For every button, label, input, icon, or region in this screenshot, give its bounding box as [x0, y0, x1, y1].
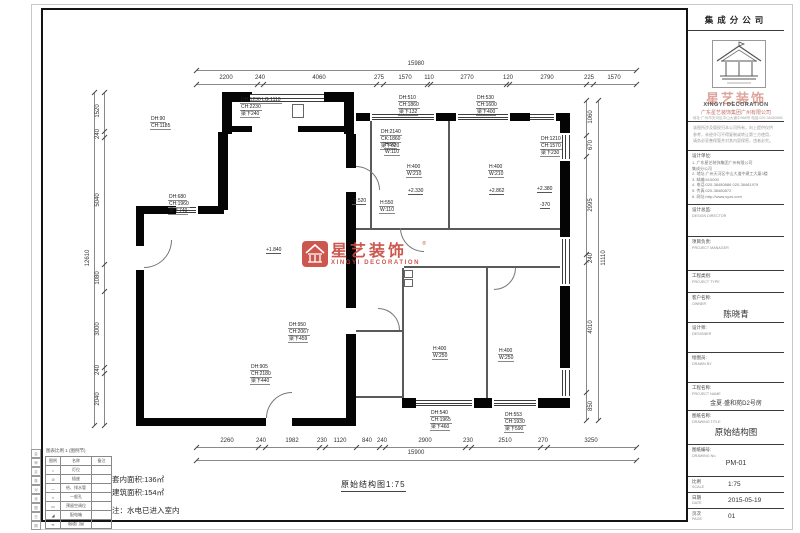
- drawing-caption: 原始结构图1:75: [341, 479, 406, 492]
- annotation-label: DH:1210CH:1570梁下230: [540, 136, 562, 157]
- dimension-label: 110: [424, 75, 434, 81]
- dimension-tick: [92, 423, 98, 429]
- dimension-label: 230: [317, 438, 327, 444]
- fixture: [292, 104, 304, 118]
- dimension-label: 15900: [408, 450, 425, 456]
- section-value: 原始结构图: [688, 426, 784, 438]
- legend-cell: 烟道门窗: [61, 520, 92, 529]
- dimension-tick: [634, 445, 640, 451]
- partition-wall: [356, 228, 560, 230]
- titleblock-divider: [688, 121, 784, 122]
- dimension-tick: [634, 68, 640, 74]
- section-value: PM-01: [688, 460, 784, 467]
- legend-cell: [92, 475, 112, 484]
- design-unit-info: 1. 广东星艺装饰集团广州有限公司 集成分公司2. 地址:广州天河区中山大道中建…: [692, 160, 768, 199]
- window: [416, 400, 472, 406]
- section-label-cn: 图纸名称:: [692, 413, 711, 419]
- wall: [346, 134, 356, 168]
- wall: [136, 352, 144, 426]
- dimension-label: 1080: [95, 271, 101, 284]
- dimension-label: 850: [588, 401, 594, 411]
- dimension-label: 230: [463, 438, 473, 444]
- legend-header-row: 图例名称备注: [46, 457, 112, 466]
- partition-wall: [356, 396, 404, 398]
- pavilion-sketch-icon: [713, 41, 765, 87]
- legend-title: 图表比例 1 (图例节): [46, 448, 86, 454]
- titleblock-divider: [688, 322, 784, 323]
- titleblock-divider: [688, 444, 784, 445]
- footer-label-en: DATE: [692, 500, 702, 505]
- annotation-label: H:400W:210: [406, 164, 422, 178]
- dimension-label: 840: [362, 438, 372, 444]
- dimension-label: 240: [256, 438, 266, 444]
- wall: [136, 418, 266, 426]
- watermark-brand-en: XINGYI DECORATION: [331, 260, 420, 266]
- wall: [474, 398, 492, 408]
- level-label: +2.380: [537, 186, 552, 193]
- dimension-line: [104, 92, 105, 425]
- area-notes: 套内面积:136㎡ 建筑面积:154㎡ 注：水电已进入室内: [112, 473, 180, 517]
- wall: [346, 334, 356, 426]
- partition-wall: [486, 268, 488, 398]
- legend-cell: [92, 511, 112, 520]
- dimension-label: 5040: [95, 193, 101, 206]
- dimension-label: 275: [374, 75, 384, 81]
- dimension-label: 11110: [601, 250, 607, 265]
- dimension-tick: [102, 423, 108, 429]
- dimension-tick: [634, 458, 640, 464]
- wall: [556, 113, 570, 121]
- titleblock-divider: [688, 150, 784, 151]
- revision-strip-cell: 会: [31, 449, 41, 458]
- annotation-label: DH:510CH:1860梁下132: [398, 95, 420, 116]
- door-arc: [494, 268, 516, 290]
- fixture: [404, 270, 413, 278]
- dimension-label: 1060: [588, 110, 594, 123]
- dimension-label: 120: [503, 75, 513, 81]
- dimension-line: [196, 70, 636, 71]
- window-mid: [458, 117, 508, 118]
- note-build-area: 建筑面积:154㎡: [112, 486, 180, 499]
- partition-wall: [404, 266, 560, 268]
- window-mid: [530, 117, 554, 118]
- section-label-cn: 客户名称:: [692, 295, 711, 301]
- legend-cell: 一般孔: [61, 493, 92, 502]
- revision-strip-cell: 对: [31, 485, 41, 494]
- dimension-label: 1570: [607, 75, 620, 81]
- annotation-label: H:400W:250: [432, 346, 448, 360]
- dimension-label: 2790: [540, 75, 553, 81]
- dimension-label: 225: [584, 75, 594, 81]
- legend-cell: 预留空调位: [61, 502, 92, 511]
- legend-row: ◢配电箱: [46, 511, 112, 520]
- drawing-sheet: 1598022002404060275157011027701202790225…: [0, 0, 800, 533]
- wall: [560, 161, 570, 237]
- dimension-label: 240: [95, 129, 101, 139]
- dimension-label: 2510: [498, 438, 511, 444]
- legend-cell: ▪▪: [46, 520, 61, 529]
- annotation-label: DH:553CH:1930梁下590: [504, 412, 526, 433]
- legend-row: ⊙插座: [46, 475, 112, 484]
- dimension-label: 270: [538, 438, 548, 444]
- section-label-cn: 绘图员:: [692, 355, 707, 361]
- wall: [538, 398, 550, 408]
- level-label: +2.330: [408, 188, 423, 195]
- legend-cell: [92, 493, 112, 502]
- legend-row: ▭预留空调位: [46, 502, 112, 511]
- section-label-cn: 设计总监:: [692, 207, 711, 213]
- dimension-label: 670: [588, 140, 594, 150]
- door-arc: [266, 392, 292, 418]
- partition-wall: [356, 330, 404, 332]
- dimension-label: 2200: [219, 75, 232, 81]
- footer-value: 01: [728, 513, 735, 520]
- section-label-cn: 工程名称:: [692, 385, 711, 391]
- section-label-en: PROJECT MANAGER: [692, 245, 729, 250]
- dimension-label: 12610: [85, 250, 91, 267]
- window-mid: [416, 403, 472, 404]
- legend-cell: ⊙: [46, 475, 61, 484]
- wall: [218, 132, 228, 210]
- brand-watermark: 星艺装饰 XINGYI DECORATION ®: [302, 241, 420, 267]
- dimension-label: 3250: [584, 438, 597, 444]
- annotation-label: DH:540CH:1965梁下460: [430, 410, 452, 431]
- legend-cell: [92, 466, 112, 475]
- window: [530, 114, 554, 120]
- window-mid: [372, 117, 434, 118]
- window-mid: [494, 403, 536, 404]
- legend-row: —给、排水管: [46, 484, 112, 493]
- fixture: [404, 279, 413, 287]
- level-label: +1.840: [266, 247, 281, 254]
- legend-cell: 名称: [61, 457, 92, 466]
- section-label-en: DRAWING No.: [692, 453, 716, 458]
- footer-label-en: PAGE: [692, 516, 702, 521]
- section-label-en: DESIGN DIRECTOR: [692, 213, 726, 218]
- dimension-label: 1570: [398, 75, 411, 81]
- titleblock-divider: [688, 30, 784, 31]
- dimension-label: 240: [588, 253, 594, 263]
- window: [562, 239, 570, 284]
- door-arc: [356, 166, 380, 190]
- annotation-label: DH:530CH:1600梁下400: [476, 95, 498, 116]
- wall: [560, 121, 570, 133]
- annotation-label: DH:90CH:1185: [150, 116, 171, 130]
- legend-cell: [92, 502, 112, 511]
- dimension-label: 2040: [95, 392, 101, 405]
- wall: [198, 206, 224, 214]
- titleblock-divider: [688, 382, 784, 383]
- window-mid: [565, 370, 566, 396]
- window-mid: [565, 135, 566, 159]
- revision-strip-cell: 核: [31, 476, 41, 485]
- legend-table: 图例名称备注•灯位⊙插座—给、排水管≈一般孔▭预留空调位◢配电箱▪▪烟道门窗: [45, 456, 112, 529]
- dimension-label: 3000: [95, 322, 101, 335]
- note-inner-area: 套内面积:136㎡: [112, 473, 180, 486]
- section-label-en: DESIGNER: [692, 331, 711, 336]
- revision-strip-cell: 定: [31, 467, 41, 476]
- window: [494, 400, 536, 406]
- legend-cell: 插座: [61, 475, 92, 484]
- window: [562, 370, 570, 396]
- dimension-label: 240: [255, 75, 265, 81]
- legend-cell: [92, 520, 112, 529]
- section-label-cn: 工程类别:: [692, 273, 711, 279]
- wall: [292, 418, 354, 426]
- section-label-cn: 项目负责:: [692, 239, 711, 245]
- dimension-line: [196, 460, 636, 461]
- dimension-label: 240: [95, 365, 101, 375]
- wall: [230, 126, 252, 132]
- revision-strip-cell: 审: [31, 458, 41, 467]
- wall: [136, 206, 144, 246]
- level-label: -0.520: [352, 198, 366, 205]
- footer-label-en: SCALE: [692, 484, 704, 489]
- titleblock-divider: [688, 292, 784, 293]
- section-label-en: OWNER: [692, 301, 706, 306]
- dimension-label: 15980: [408, 61, 425, 67]
- annotation-label: DH:1230 LG:1110CH:2230梁下240: [240, 97, 282, 118]
- legend-cell: 灯位: [61, 466, 92, 475]
- section-value: 陈晓青: [688, 308, 784, 320]
- titleblock-divider: [688, 492, 784, 493]
- design-unit-label: 设计单位:: [692, 153, 711, 159]
- titleblock-divider: [688, 236, 784, 237]
- dimension-label: 2995: [588, 198, 594, 211]
- wall: [356, 113, 370, 121]
- legend-cell: 配电箱: [61, 511, 92, 520]
- partition-wall: [402, 268, 404, 398]
- section-label-en: DRAWN BY: [692, 361, 712, 366]
- legend-row: •灯位: [46, 466, 112, 475]
- legend-cell: 给、排水管: [61, 484, 92, 493]
- legend-cell: [92, 484, 112, 493]
- branch-name: 集成分公司: [688, 14, 784, 26]
- dimension-label: 1982: [285, 438, 298, 444]
- annotation-label: H:90W:110: [384, 142, 400, 156]
- annotation-label: H:550W:110: [379, 200, 395, 214]
- title-block: 集成分公司 星艺装饰 XINGYI DECORATION 广东星艺装饰集团广州有…: [686, 8, 784, 522]
- section-value: 金夏·盛和苑D2号房: [688, 398, 784, 407]
- wall: [402, 398, 416, 408]
- brand-en: XINGYI DECORATION: [688, 102, 784, 108]
- xingyi-logo-icon: [302, 241, 328, 267]
- note-utilities: 注：水电已进入室内: [112, 504, 180, 517]
- dimension-label: 2260: [220, 438, 233, 444]
- footer-value: 1:75: [728, 481, 741, 488]
- legend-row: ≈一般孔: [46, 493, 112, 502]
- window-mid: [565, 239, 566, 284]
- annotation-label: H:400W:250: [498, 348, 514, 362]
- titleblock-divider: [688, 270, 784, 271]
- wall: [510, 113, 530, 121]
- company-address: 地址:广州市天河区中山大道中988号 电话:020-38480886: [693, 115, 779, 120]
- dimension-label: 1120: [334, 438, 347, 444]
- dimension-tick: [596, 418, 602, 424]
- section-label-cn: 设计师:: [692, 325, 707, 331]
- revision-strip-cell: 图: [31, 503, 41, 512]
- dimension-line: [598, 100, 599, 420]
- legend-row: ▪▪烟道门窗: [46, 520, 112, 529]
- revision-strip-cell: 日: [31, 512, 41, 521]
- partition-wall: [448, 121, 450, 228]
- company-logo: [712, 40, 766, 88]
- dimension-label: 240: [377, 438, 387, 444]
- section-label-cn: 图纸编号:: [692, 447, 711, 453]
- footer-value: 2015-05-19: [728, 497, 761, 504]
- dimension-line: [196, 447, 636, 448]
- annotation-label: H:400W:210: [488, 164, 504, 178]
- door-arc: [378, 308, 400, 330]
- watermark-brand-cn: 星艺装饰: [331, 243, 420, 260]
- legend-cell: ◢: [46, 511, 61, 520]
- legend-cell: 备注: [92, 457, 112, 466]
- dimension-label: 2900: [418, 438, 431, 444]
- level-label: -370: [540, 202, 550, 209]
- titleblock-divider: [688, 204, 784, 205]
- legend-cell: 图例: [46, 457, 61, 466]
- titleblock-divider: [688, 476, 784, 477]
- revision-strip-cell: 期: [31, 521, 41, 530]
- dimension-label: 1520: [95, 104, 101, 117]
- annotation-label: DH:680CH:1960梁下740: [168, 194, 190, 215]
- registered-mark: ®: [422, 241, 426, 247]
- wall: [436, 113, 456, 121]
- level-label: +2.862: [489, 188, 504, 195]
- annotation-label: DH:905CH:2180梁下440: [250, 364, 272, 385]
- legend-cell: ▭: [46, 502, 61, 511]
- dimension-tick: [584, 418, 590, 424]
- titleblock-divider: [688, 410, 784, 411]
- dimension-label: 4060: [312, 75, 325, 81]
- section-label-en: PROJECT NAME: [692, 391, 721, 396]
- copyright-notice: 该图所涉及版权归本公司所有，向上提供仅供参考，未经许可不得复制或转让第三方使用，…: [693, 125, 783, 145]
- door-arc: [144, 240, 172, 268]
- legend-cell: —: [46, 484, 61, 493]
- revision-strip-cell: 设: [31, 494, 41, 503]
- window: [562, 135, 570, 159]
- titleblock-divider: [688, 508, 784, 509]
- titleblock-divider: [688, 352, 784, 353]
- dimension-label: 2770: [460, 75, 473, 81]
- wall: [298, 126, 348, 132]
- dimension-tick: [634, 82, 640, 88]
- dimension-label: 4010: [588, 320, 594, 333]
- legend-cell: ≈: [46, 493, 61, 502]
- wall: [136, 270, 144, 352]
- wall: [560, 286, 570, 368]
- annotation-label: DH:950CH:2067梁下459: [288, 322, 310, 343]
- section-label-en: PROJECT TYPE: [692, 279, 720, 284]
- dimension-line: [94, 92, 95, 425]
- wall: [548, 398, 570, 408]
- section-label-en: DRAWING TITLE: [692, 419, 721, 424]
- legend-cell: •: [46, 466, 61, 475]
